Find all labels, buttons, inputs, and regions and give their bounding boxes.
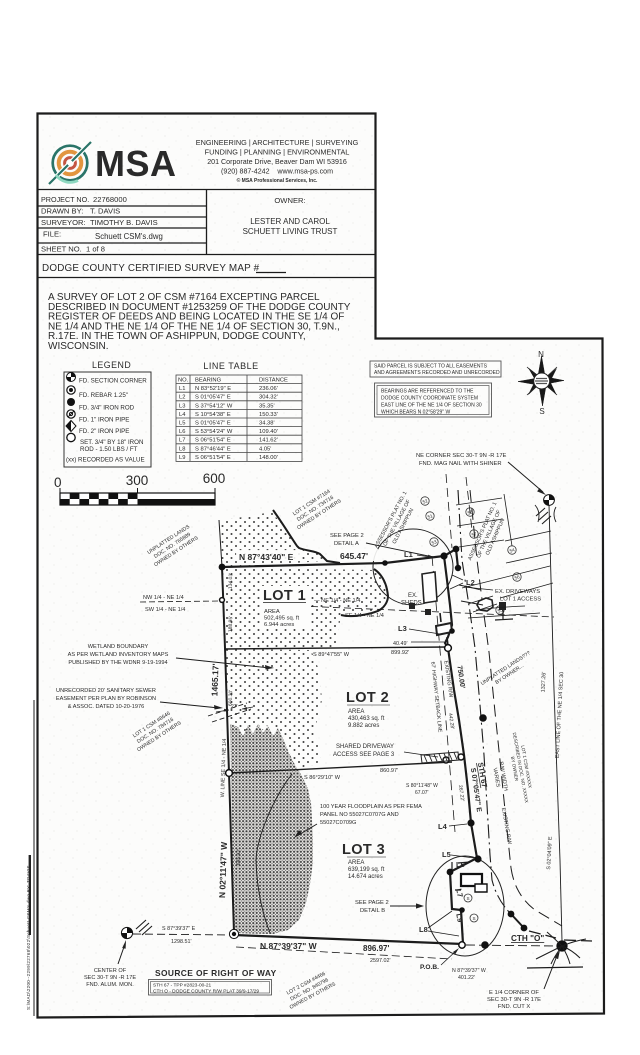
svg-text:899.92': 899.92': [391, 650, 409, 656]
svg-text:FD. 3/4" IRON ROD: FD. 3/4" IRON ROD: [79, 405, 135, 412]
svg-text:N 02°11'47" W: N 02°11'47" W: [217, 841, 229, 899]
svg-text:639,199 sq. ft: 639,199 sq. ft: [348, 867, 385, 873]
svg-text:Schuett CSM's.dwg: Schuett CSM's.dwg: [95, 232, 163, 241]
svg-text:DRAWN BY:: DRAWN BY:: [41, 207, 83, 216]
svg-text:S 87°39'37" E: S 87°39'37" E: [162, 926, 196, 932]
svg-text:S 80°11'48" W: S 80°11'48" W: [406, 783, 438, 789]
svg-text:134.03': 134.03': [228, 573, 235, 589]
svg-text:SHEET NO.: SHEET NO.: [41, 245, 82, 254]
svg-text:BEARINGS ARE REFERENCED TO THE: BEARINGS ARE REFERENCED TO THE: [381, 389, 474, 395]
svg-text:L7: L7: [454, 888, 464, 898]
svg-text:(920) 887-4242 www.msa-ps.c: (920) 887-4242 www.msa-ps.com: [221, 168, 333, 176]
svg-text:22768000: 22768000: [93, 195, 127, 204]
svg-text:34.38': 34.38': [259, 421, 275, 427]
svg-text:NO.: NO.: [178, 378, 189, 384]
svg-text:WHICH BEARS N 02°58'29" W: WHICH BEARS N 02°58'29" W: [381, 410, 450, 416]
svg-text:100 YEAR FLOODPLAIN AS PER FEM: 100 YEAR FLOODPLAIN AS PER FEMA: [320, 804, 422, 810]
svg-text:NW 1/4 - NE 1/4: NW 1/4 - NE 1/4: [143, 595, 184, 601]
svg-text:SAID PARCEL IS SUBJECT TO ALL: SAID PARCEL IS SUBJECT TO ALL EASEMENTS: [374, 364, 488, 370]
svg-text:DETAIL B: DETAIL B: [360, 908, 385, 914]
svg-text:201 Corporate Drive, Beaver Da: 201 Corporate Drive, Beaver Dam WI 53916: [207, 158, 347, 166]
svg-text:— NE 1/4 - NE 1/4: — NE 1/4 - NE 1/4: [314, 598, 360, 604]
svg-text:AND AGREEMENTS RECORDED AND UN: AND AGREEMENTS RECORDED AND UNRECORDED: [374, 370, 500, 376]
svg-text:0: 0: [54, 475, 62, 490]
svg-text:1 of 8: 1 of 8: [86, 245, 105, 254]
svg-text:L9: L9: [454, 913, 464, 923]
svg-text:FND. MAG NAIL WITH SHINER: FND. MAG NAIL WITH SHINER: [419, 461, 502, 467]
svg-text:CTH "O": CTH "O": [511, 934, 544, 943]
svg-text:L8: L8: [419, 925, 428, 934]
svg-text:SHEDS: SHEDS: [401, 601, 422, 607]
svg-text:© MSA Professional Services, I: © MSA Professional Services, Inc.: [237, 177, 318, 184]
svg-text:SEC 30-T 9N -R 17E: SEC 30-T 9N -R 17E: [487, 997, 541, 1003]
svg-text:14.674 acres: 14.674 acres: [348, 874, 383, 880]
svg-text:S: S: [466, 896, 469, 901]
svg-text:EASEMENT PER PLAN BY ROBINSON: EASEMENT PER PLAN BY ROBINSON: [56, 696, 156, 702]
svg-text:L2: L2: [179, 395, 185, 401]
svg-text:S 37°54'12" W: S 37°54'12" W: [195, 403, 233, 409]
svg-text:S 86°29'10" W: S 86°29'10" W: [304, 775, 341, 781]
svg-text:L9: L9: [179, 455, 185, 461]
svg-text:S: S: [539, 407, 544, 416]
svg-text:860.97': 860.97': [380, 768, 398, 774]
svg-text:L1: L1: [179, 386, 185, 392]
svg-text:EX.: EX.: [408, 593, 418, 599]
svg-text:1298.51': 1298.51': [171, 939, 192, 945]
svg-text:SEE PAGE 2: SEE PAGE 2: [330, 533, 364, 539]
svg-text:LINE TABLE: LINE TABLE: [203, 361, 258, 371]
svg-text:9.882 acres: 9.882 acres: [348, 723, 379, 729]
svg-text:OWNER:: OWNER:: [274, 196, 305, 205]
svg-text:WETLAND BOUNDARY: WETLAND BOUNDARY: [88, 644, 149, 650]
svg-text:35.35': 35.35': [259, 403, 275, 409]
svg-text:645.92': 645.92': [236, 849, 243, 865]
svg-text:L6: L6: [456, 860, 465, 869]
svg-text:SCHUETT LIVING TRUST: SCHUETT LIVING TRUST: [243, 227, 338, 236]
svg-text:SOURCE OF RIGHT OF WAY: SOURCE OF RIGHT OF WAY: [155, 968, 277, 978]
svg-text:FD. 1" IRON PIPE: FD. 1" IRON PIPE: [79, 417, 129, 424]
svg-text:N 87°39'37" W: N 87°39'37" W: [260, 941, 318, 951]
svg-text:401.22': 401.22': [458, 975, 475, 981]
svg-text:LEGEND: LEGEND: [92, 360, 131, 370]
svg-text:(xx) RECORDED AS VALUE: (xx) RECORDED AS VALUE: [66, 457, 145, 464]
svg-text:N 83°52'19" E: N 83°52'19" E: [195, 386, 231, 392]
svg-text:DETAIL A: DETAIL A: [334, 541, 359, 547]
svg-text:MSA: MSA: [95, 143, 177, 184]
svg-text:EX. DRIVEWAYS: EX. DRIVEWAYS: [495, 589, 540, 595]
svg-text:SURVEYOR:: SURVEYOR:: [41, 218, 86, 227]
svg-text:FD. 2" IRON PIPE: FD. 2" IRON PIPE: [79, 428, 129, 435]
svg-text:STH 67 - TPP #2823-00-21: STH 67 - TPP #2823-00-21: [153, 983, 212, 989]
svg-text:E 1/4 CORNER OF: E 1/4 CORNER OF: [489, 990, 539, 996]
svg-text:AS PER WETLAND INVENTORY MAPS: AS PER WETLAND INVENTORY MAPS: [68, 652, 169, 658]
svg-text:ACCESS SEE PAGE 3: ACCESS SEE PAGE 3: [333, 752, 395, 758]
svg-text:600.30': 600.30': [228, 690, 235, 706]
svg-text:S 89°47'55" W: S 89°47'55" W: [313, 652, 350, 658]
svg-text:LOT 1 ACCESS: LOT 1 ACCESS: [500, 597, 541, 603]
svg-text:40.49': 40.49': [393, 641, 408, 647]
svg-text:600: 600: [203, 471, 226, 486]
svg-text:EAST LINE OF THE NE 1/4 OF SEC: EAST LINE OF THE NE 1/4 OF SECTION 30: [381, 403, 482, 409]
svg-text:ENGINEERING | ARCHITECTURE | S: ENGINEERING | ARCHITECTURE | SURVEYING: [196, 138, 359, 147]
svg-text:S 06°51'54" E: S 06°51'54" E: [195, 455, 231, 461]
svg-text:300: 300: [126, 473, 149, 488]
svg-text:L6: L6: [179, 429, 185, 435]
svg-text:PANEL NO 55027C0707G AND: PANEL NO 55027C0707G AND: [320, 812, 399, 818]
svg-text:S 01°05'47" E: S 01°05'47" E: [195, 421, 231, 427]
svg-text:AREA: AREA: [264, 609, 280, 615]
svg-text:1465.17': 1465.17': [209, 663, 220, 696]
svg-text:S 87°46'44" E: S 87°46'44" E: [195, 446, 231, 452]
svg-text:S 06°51'54" E: S 06°51'54" E: [195, 438, 231, 444]
svg-text:BEARING: BEARING: [195, 378, 222, 384]
svg-text:109.40': 109.40': [259, 429, 278, 435]
svg-text:502,495 sq. ft: 502,495 sq. ft: [264, 616, 300, 622]
svg-text:N 87°43'40" E: N 87°43'40" E: [239, 552, 294, 562]
svg-text:SW 1/4 - NE 1/4: SW 1/4 - NE 1/4: [145, 607, 185, 613]
svg-text:L3: L3: [179, 403, 185, 409]
svg-text:4.05': 4.05': [259, 446, 271, 452]
svg-text:SE 1/4 - NE 1/4: SE 1/4 - NE 1/4: [345, 613, 384, 619]
svg-text:L4: L4: [438, 822, 448, 831]
svg-text:S 01°05'47" E: S 01°05'47" E: [195, 395, 231, 401]
svg-text:2597.02': 2597.02': [370, 958, 391, 964]
svg-text:LOT 2: LOT 2: [346, 690, 389, 706]
svg-text:67.07': 67.07': [415, 790, 429, 796]
svg-text:S: S: [472, 916, 475, 921]
svg-text:L4: L4: [179, 412, 186, 418]
svg-text:L5: L5: [179, 421, 185, 427]
svg-text:UNRECORDED 20' SANITARY SEWER: UNRECORDED 20' SANITARY SEWER: [56, 688, 156, 694]
svg-text:FD. SECTION CORNER: FD. SECTION CORNER: [79, 378, 147, 385]
svg-text:SEC 30-T 9N -R 17E: SEC 30-T 9N -R 17E: [84, 975, 136, 981]
svg-text:645.47': 645.47': [340, 551, 368, 561]
svg-text:S 10°54'38" E: S 10°54'38" E: [195, 412, 231, 418]
svg-text:AREA: AREA: [348, 709, 364, 715]
svg-text:L3: L3: [398, 624, 407, 633]
svg-text:1327.26': 1327.26': [540, 672, 547, 693]
svg-text:188.95': 188.95': [228, 616, 235, 632]
svg-text:141.62': 141.62': [259, 438, 278, 444]
svg-text:TIMOTHY B. DAVIS: TIMOTHY B. DAVIS: [90, 218, 158, 227]
svg-text:PUBLISHED BY THE WDNR 9-19-199: PUBLISHED BY THE WDNR 9-19-1994: [68, 660, 167, 666]
svg-text:AREA: AREA: [348, 860, 364, 866]
svg-text:430,463 sq. ft: 430,463 sq. ft: [348, 716, 385, 722]
svg-text:DODGE COUNTY COORDINATE SYSTEM: DODGE COUNTY COORDINATE SYSTEM: [381, 396, 478, 402]
svg-text:P.O.B.: P.O.B.: [420, 964, 439, 971]
svg-text:PROJECT NO.: PROJECT NO.: [41, 195, 89, 204]
svg-text:L5: L5: [442, 850, 451, 859]
svg-text:LOT 3: LOT 3: [342, 842, 385, 858]
svg-text:6.944 acres: 6.944 acres: [264, 622, 294, 628]
svg-text:FILE:: FILE:: [43, 230, 61, 239]
svg-text:NE CORNER SEC 30-T 9N -R 17E: NE CORNER SEC 30-T 9N -R 17E: [416, 453, 507, 459]
svg-text:L8: L8: [179, 446, 185, 452]
svg-text:ROD - 1.50 LBS / FT: ROD - 1.50 LBS / FT: [80, 446, 138, 453]
svg-text:SHARED DRIVEWAY: SHARED DRIVEWAY: [336, 744, 394, 750]
svg-text:148.00': 148.00': [259, 455, 278, 461]
svg-text:S 53°54'24" W: S 53°54'24" W: [195, 429, 233, 435]
svg-text:L2: L2: [466, 578, 475, 587]
svg-text:L7: L7: [179, 438, 185, 444]
svg-text:DODGE COUNTY CERTIFIED SURVEY: DODGE COUNTY CERTIFIED SURVEY MAP #: [42, 263, 260, 274]
svg-text:FND. CUT X: FND. CUT X: [498, 1004, 531, 1010]
svg-text:FUNDING | PLANNING | ENVIRONME: FUNDING | PLANNING | ENVIRONMENTAL: [205, 148, 350, 157]
svg-text:LOT 1: LOT 1: [263, 588, 306, 604]
svg-text:236.06': 236.06': [259, 386, 278, 392]
svg-text:CTH O - DODGE COUNTY R/W PLAT: CTH O - DODGE COUNTY R/W PLAT 39/9-17/29: [153, 989, 259, 995]
svg-text:SET. 3/4" BY 18" IRON: SET. 3/4" BY 18" IRON: [80, 439, 143, 446]
svg-text:55027C0709G: 55027C0709G: [320, 820, 356, 826]
svg-text:& ASSOC. DATED 10-20-1976: & ASSOC. DATED 10-20-1976: [68, 704, 144, 710]
svg-text:DISTANCE: DISTANCE: [259, 378, 288, 384]
svg-text:T. DAVIS: T. DAVIS: [90, 207, 120, 216]
svg-text:FD. REBAR 1.25": FD. REBAR 1.25": [79, 392, 128, 399]
svg-text:CENTER OF: CENTER OF: [94, 968, 127, 974]
svg-text:SEE PAGE 2: SEE PAGE 2: [355, 900, 389, 906]
svg-text:896.97': 896.97': [363, 944, 389, 953]
svg-text:304.32': 304.32': [259, 395, 278, 401]
svg-text:FND. ALUM. MON.: FND. ALUM. MON.: [86, 982, 134, 988]
svg-text:150.33': 150.33': [259, 412, 278, 418]
svg-text:LESTER AND CAROL: LESTER AND CAROL: [250, 217, 330, 226]
svg-text:N 87°39'37" W: N 87°39'37" W: [452, 968, 486, 974]
svg-text:WISCONSIN.: WISCONSIN.: [48, 341, 109, 352]
